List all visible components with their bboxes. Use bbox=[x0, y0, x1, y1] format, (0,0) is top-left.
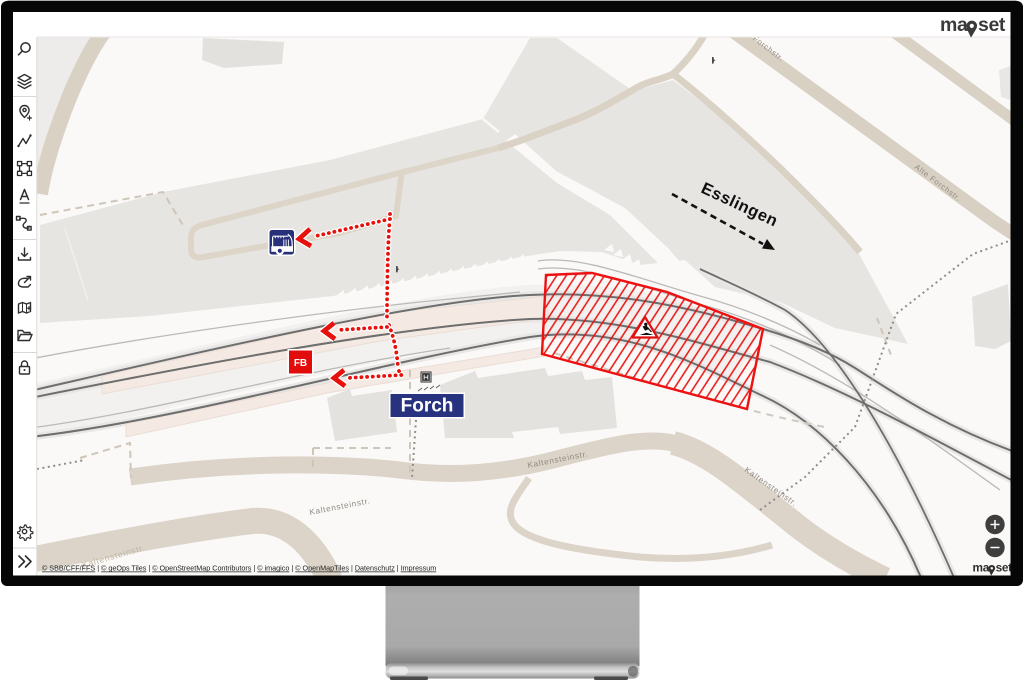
svg-text:© SBB/CFF/FFS | © geOps Tiles: © SBB/CFF/FFS | © geOps Tiles | © OpenSt… bbox=[42, 564, 436, 573]
svg-text:Forch: Forch bbox=[401, 396, 454, 417]
svg-text:FB: FB bbox=[294, 358, 307, 369]
svg-text:ma: ma bbox=[940, 14, 968, 36]
svg-text:ma: ma bbox=[973, 561, 990, 575]
svg-text:set: set bbox=[978, 14, 1006, 36]
svg-text:set: set bbox=[996, 561, 1013, 575]
